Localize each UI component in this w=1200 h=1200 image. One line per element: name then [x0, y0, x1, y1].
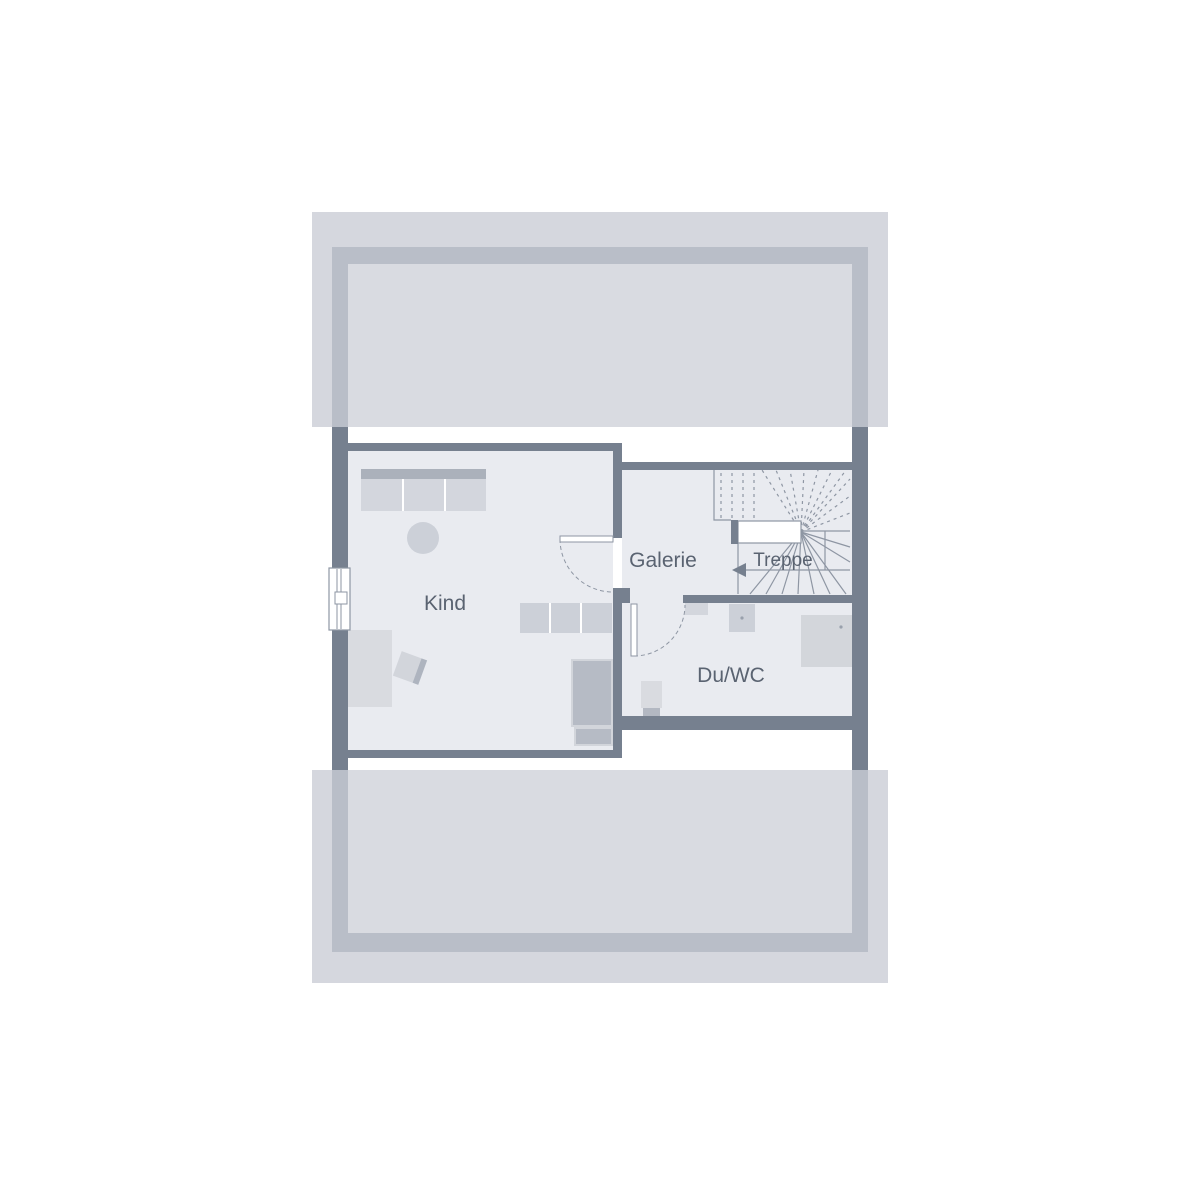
wall-right-outer — [852, 427, 868, 770]
window-handle — [335, 592, 347, 604]
wall-galerie-top — [622, 462, 852, 470]
wall-duwc-bottom — [622, 716, 852, 730]
room-label-kind: Kind — [424, 592, 466, 615]
stair-cut-landing — [738, 521, 801, 543]
window-left — [329, 568, 350, 630]
sink — [641, 681, 662, 708]
tall-cabinet — [572, 660, 612, 726]
stool-circle — [407, 522, 439, 554]
radiator — [685, 603, 708, 615]
shower-drain-dot — [839, 625, 842, 628]
wall-kind-top — [348, 443, 622, 451]
room-label-galerie: Galerie — [629, 549, 697, 572]
storage-box — [575, 728, 612, 745]
wall-duwc-top — [683, 595, 852, 603]
wardrobe-body — [361, 479, 486, 511]
stair-newel-wall — [731, 520, 738, 544]
wall-central-upper — [613, 443, 622, 538]
shower — [801, 615, 852, 667]
toilet-drain-dot — [740, 616, 743, 619]
wall-central-lower — [613, 603, 622, 758]
floor-plan-canvas: Kind Galerie Treppe Du/WC — [0, 0, 1200, 1200]
room-label-treppe: Treppe — [753, 550, 813, 571]
wall-kind-bottom — [348, 750, 622, 758]
roof-inner-top — [348, 264, 852, 427]
floor-plan-drawing: Kind Galerie Treppe Du/WC — [0, 0, 1200, 1200]
roof-area-top — [312, 212, 888, 427]
bed — [348, 630, 392, 707]
sideboard — [520, 603, 612, 633]
wardrobe-back-panel — [361, 469, 486, 479]
door-leaf-kind — [560, 536, 613, 542]
door-leaf-duwc — [631, 604, 637, 656]
roof-area-bottom — [312, 770, 888, 983]
room-label-duwc: Du/WC — [697, 664, 765, 687]
roof-inner-bottom — [348, 770, 852, 933]
wall-door-jamb — [613, 588, 630, 603]
